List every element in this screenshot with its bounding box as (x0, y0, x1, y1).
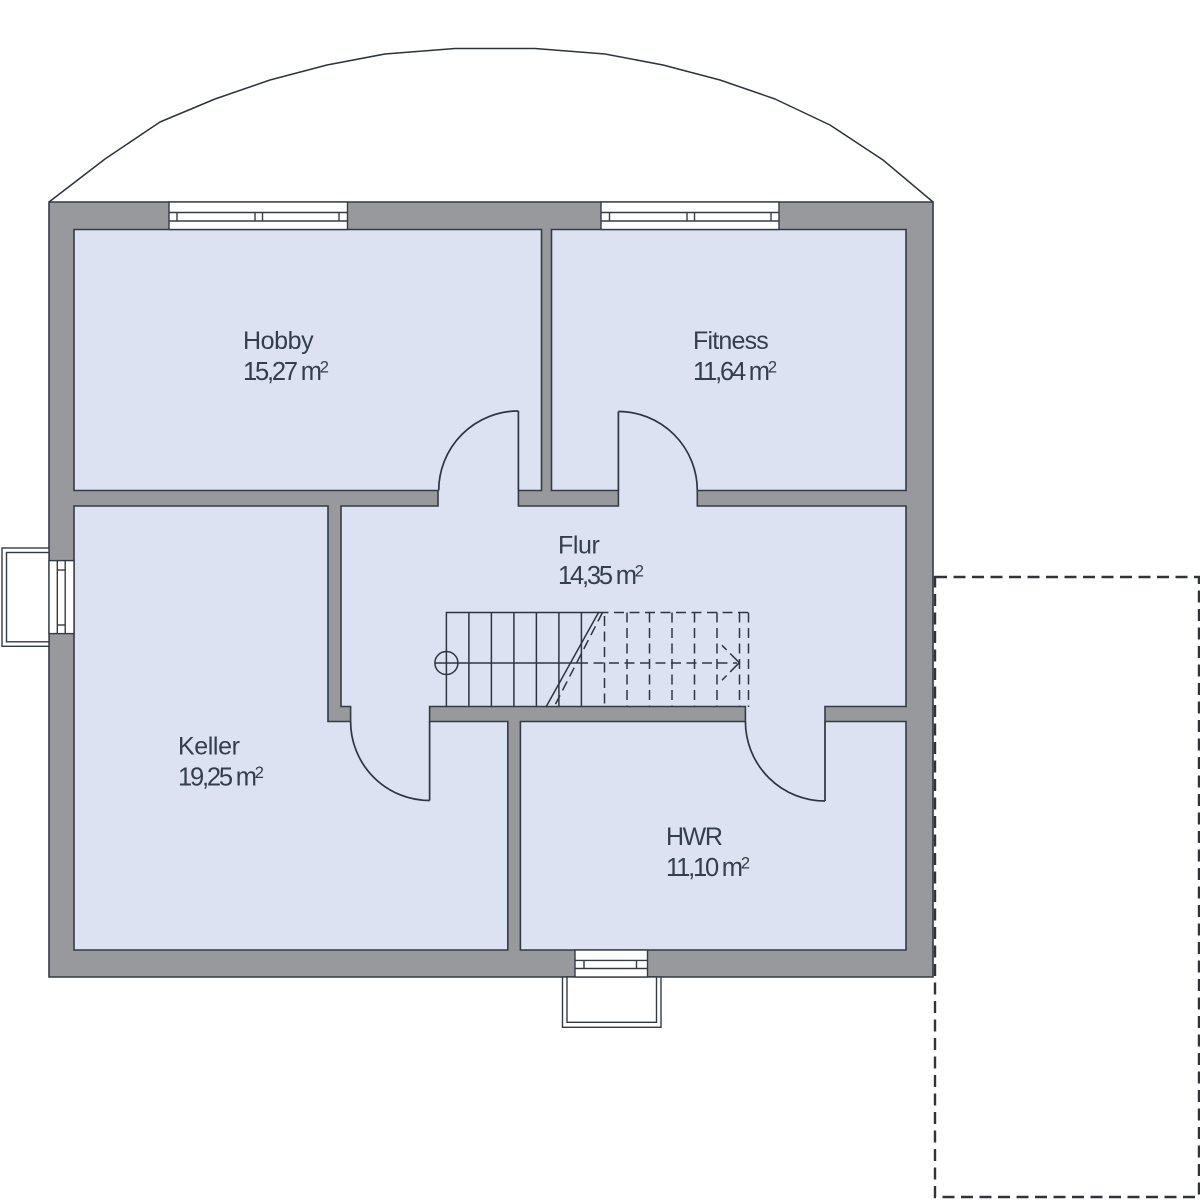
svg-text:Flur: Flur (558, 532, 600, 560)
svg-text:11,64 m2: 11,64 m2 (693, 358, 777, 386)
svg-text:19,25 m2: 19,25 m2 (178, 764, 264, 792)
svg-text:Keller: Keller (178, 733, 240, 761)
svg-text:HWR: HWR (666, 823, 722, 851)
svg-text:Hobby: Hobby (243, 327, 314, 355)
svg-text:14,35 m2: 14,35 m2 (558, 562, 644, 590)
svg-text:Fitness: Fitness (693, 327, 768, 355)
svg-text:15,27 m2: 15,27 m2 (243, 358, 329, 386)
svg-text:11,10 m2: 11,10 m2 (666, 854, 750, 882)
